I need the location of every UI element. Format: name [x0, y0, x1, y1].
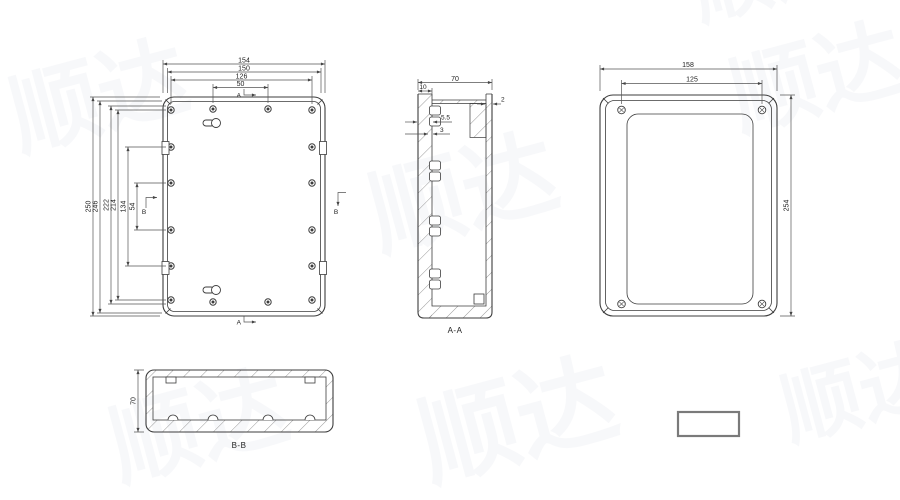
dim-134: 134	[121, 201, 128, 213]
watermark-layer: 顺达 顺达 顺达 顺达 顺达 顺达 顺达	[0, 0, 900, 500]
watermark-text: 顺达	[357, 117, 569, 272]
dim-222: 222	[104, 199, 111, 211]
front-screw-holes	[168, 106, 315, 305]
bottom-boss-section	[474, 294, 484, 304]
dim-126: 126	[236, 74, 248, 81]
dim-254: 254	[784, 200, 791, 212]
title-block-placeholder	[678, 412, 739, 436]
dim-10: 10	[419, 84, 427, 91]
section-aa-label: A-A	[448, 326, 463, 335]
dim-5-5: 5.5	[441, 115, 450, 122]
dim-154: 154	[238, 58, 250, 65]
dim-214: 214	[111, 199, 118, 211]
front-outer-outline	[163, 97, 325, 316]
cut-arrow-b-left: B	[142, 209, 146, 216]
right-wall-hatch	[486, 94, 492, 318]
dim-70-bb: 70	[131, 397, 138, 405]
dim-2: 2	[501, 97, 505, 104]
corner-ticks	[166, 100, 323, 314]
dim-70-aa: 70	[451, 76, 459, 83]
section-bb-label: B-B	[232, 441, 247, 450]
technical-drawing-canvas: 顺达 顺达 顺达 顺达 顺达 顺达 顺达	[0, 0, 900, 500]
dim-125: 125	[686, 77, 698, 84]
drawing-sheet: 顺达 顺达 顺达 顺达 顺达 顺达 顺达	[0, 0, 900, 500]
cut-arrow-a-top: A	[237, 93, 242, 100]
recessed-panel	[627, 114, 753, 304]
front-keyhole-slots	[203, 119, 221, 295]
cut-arrow-b-right: B	[334, 209, 338, 216]
front-inner-outline	[168, 102, 321, 312]
bottom-wall-hatch	[424, 306, 486, 318]
dim-54: 54	[130, 203, 137, 211]
cut-arrow-a-bottom: A	[237, 320, 242, 327]
dim-50: 50	[237, 81, 245, 88]
front-side-notches	[162, 142, 327, 275]
watermark-text: 顺达	[406, 338, 629, 500]
screw-boss-section	[470, 104, 486, 138]
dim-246: 246	[93, 201, 100, 213]
watermark-text: 顺达	[771, 327, 900, 458]
dim-158: 158	[682, 62, 694, 69]
dim-150: 150	[238, 66, 250, 73]
top-face-hatch	[432, 100, 486, 104]
dim-3: 3	[440, 127, 444, 134]
dim-250: 250	[86, 201, 93, 213]
